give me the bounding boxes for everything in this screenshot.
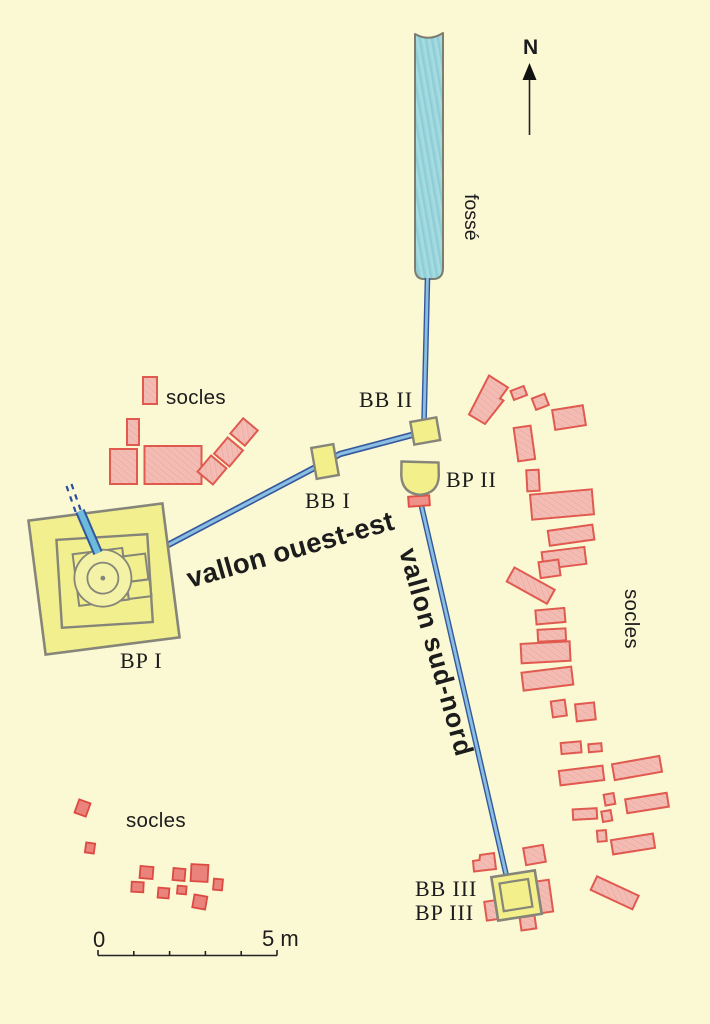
svg-text:BP I: BP I <box>120 648 163 673</box>
svg-text:BB I: BB I <box>305 488 351 513</box>
svg-text:socles: socles <box>126 809 186 832</box>
svg-text:N: N <box>523 36 538 59</box>
svg-text:5 m: 5 m <box>262 926 299 951</box>
svg-text:BB II: BB II <box>359 387 413 412</box>
svg-text:socles: socles <box>620 589 643 649</box>
svg-text:BP II: BP II <box>446 467 497 492</box>
svg-text:fossé: fossé <box>460 194 482 241</box>
svg-text:0: 0 <box>93 927 105 952</box>
svg-text:BP III: BP III <box>415 900 474 925</box>
svg-text:BB III: BB III <box>415 876 477 901</box>
svg-text:socles: socles <box>166 386 226 409</box>
